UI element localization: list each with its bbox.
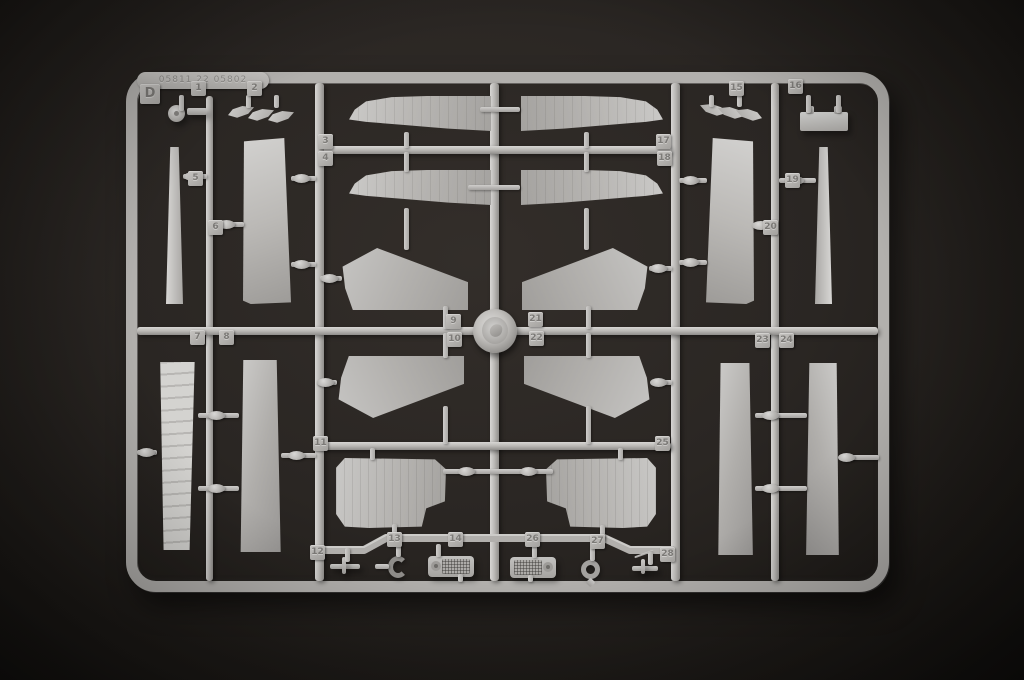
part-number-tag: 20: [763, 220, 778, 235]
part-number-tag: 12: [310, 545, 325, 560]
part-fuselage-panel-right: [706, 138, 754, 304]
part-number-tag: 25: [655, 436, 670, 451]
part-number-tag: 5: [188, 171, 203, 186]
sprue-gate-vertical: [246, 95, 251, 108]
injection-gate-bulge: [138, 448, 155, 457]
injection-gate-bulge: [762, 484, 779, 493]
part-number-tag: 17: [656, 134, 671, 149]
part-number-tag: 13: [387, 532, 402, 547]
injection-gate-bulge: [293, 260, 310, 269]
part-number-tag: 11: [313, 436, 328, 451]
part-small-block: [800, 112, 848, 131]
runner-horizontal-wavy: [320, 526, 680, 560]
part-number-tag: 4: [318, 151, 333, 166]
injection-gate-bulge: [288, 451, 305, 460]
sprue-gate-vertical: [404, 208, 409, 250]
part-aileron-right-1: [716, 363, 754, 555]
sprue-gate-vertical: [443, 406, 448, 444]
runner-horizontal-upper: [324, 146, 671, 154]
sprue-gate-vertical: [586, 333, 591, 358]
sprue-gate-vertical: [709, 95, 714, 107]
cowl-disc-relief: [489, 323, 504, 339]
sprue-gate-vertical: [404, 132, 409, 148]
part-number-tag: 15: [729, 81, 744, 96]
part-number-tag: 16: [788, 79, 803, 94]
injection-gate-bulge: [520, 467, 537, 476]
part-fuselage-panel-left: [243, 138, 291, 304]
sprue-gate-vertical: [806, 95, 811, 113]
sprue-gate-vertical: [586, 406, 591, 444]
part-number-tag: 24: [779, 333, 794, 348]
sprue-gate-vertical: [404, 152, 409, 172]
part-cowl-disc: [473, 309, 517, 353]
injection-gate-bulge: [321, 274, 338, 283]
sprue-gate-vertical: [586, 306, 591, 329]
part-number-tag: 2: [247, 81, 262, 96]
sprue-gate-vertical: [584, 132, 589, 148]
part-number-tag: 7: [190, 330, 205, 345]
part-number-tag: 9: [446, 314, 461, 329]
sprue-gate-horizontal: [375, 564, 389, 569]
injection-gate-bulge: [293, 174, 310, 183]
sprue-gate-vertical: [345, 548, 350, 562]
part-number-tag: 6: [208, 220, 223, 235]
part-c-bracket: [388, 556, 408, 578]
part-number-tag: 23: [755, 333, 770, 348]
part-number-tag: 10: [447, 332, 462, 347]
part-number-tag: 27: [590, 534, 605, 549]
part-ring: [581, 560, 600, 579]
radiator-right-cap: [543, 562, 553, 572]
part-number-tag: 14: [448, 532, 463, 547]
injection-gate-bulge: [650, 264, 667, 273]
injection-gate-bulge: [682, 258, 699, 267]
part-aileron-smooth-left: [238, 360, 282, 552]
sprue-gate-horizontal: [480, 107, 520, 112]
part-axle-right: [632, 566, 658, 571]
sprue-gate-vertical: [618, 448, 623, 460]
injection-gate-bulge: [650, 378, 667, 387]
part-number-tag: 3: [318, 134, 333, 149]
sprue-gate-vertical: [179, 95, 184, 111]
sprue-gate-horizontal: [468, 185, 520, 190]
injection-gate-bulge: [682, 176, 699, 185]
radiator-right-mesh: [514, 560, 542, 575]
injection-gate-bulge: [838, 453, 855, 462]
runner-vertical-left-mini: [206, 96, 213, 581]
cowl-disc-inner: [482, 317, 508, 344]
part-small-rod: [187, 108, 207, 115]
radiator-left-mesh: [442, 559, 470, 574]
injection-gate-bulge: [317, 378, 334, 387]
sprue-photo: 05811 22 05802 D: [0, 0, 1024, 680]
sprue-letter-tag: D: [140, 84, 160, 104]
part-number-tag: 22: [529, 331, 544, 346]
part-number-tag: 28: [660, 547, 675, 562]
sprue-gate-vertical: [274, 95, 279, 108]
sprue-gate-vertical: [584, 208, 589, 250]
part-aileron-right-2: [805, 363, 841, 555]
sprue-gate-vertical: [584, 152, 589, 172]
radiator-left-cap: [431, 561, 441, 571]
injection-gate-bulge: [208, 411, 225, 420]
part-number-tag: 18: [657, 151, 672, 166]
injection-gate-bulge: [458, 467, 475, 476]
sprue-gate-vertical: [648, 552, 653, 565]
part-axle-right-tab: [641, 559, 645, 574]
sprue-gate-vertical: [458, 574, 463, 582]
injection-gate-bulge: [762, 411, 779, 420]
part-number-tag: 1: [191, 81, 206, 96]
sprue-gate-vertical: [370, 448, 375, 460]
sprue-gate-vertical: [836, 95, 841, 113]
part-number-tag: 19: [785, 173, 800, 188]
part-number-tag: 8: [219, 330, 234, 345]
injection-gate-bulge: [208, 484, 225, 493]
sprue-gate-vertical: [737, 95, 742, 107]
sprue-gate-vertical: [528, 575, 533, 582]
part-number-tag: 26: [525, 532, 540, 547]
sprue-gate-vertical: [436, 544, 441, 557]
part-number-tag: 21: [528, 312, 543, 327]
